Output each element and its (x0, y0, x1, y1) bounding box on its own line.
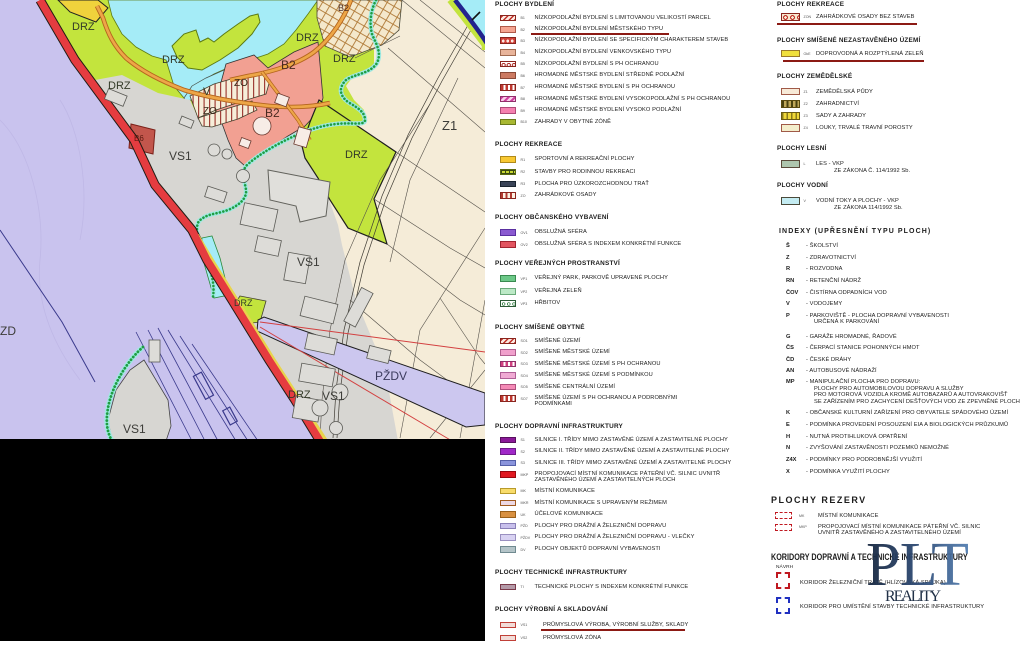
svg-text:DRZ: DRZ (296, 32, 319, 44)
svg-text:REALITY: REALITY (885, 588, 943, 605)
svg-text:DRZ: DRZ (72, 21, 95, 33)
svg-text:ZO: ZO (234, 78, 248, 89)
svg-text:DRZ: DRZ (234, 298, 253, 308)
svg-text:ZO: ZO (203, 106, 217, 117)
svg-text:B6: B6 (134, 134, 144, 143)
svg-text:PŽDV: PŽDV (375, 368, 407, 383)
svg-text:DRZ: DRZ (345, 149, 368, 161)
svg-text:VS1: VS1 (322, 389, 345, 403)
svg-text:DRZ: DRZ (108, 80, 131, 92)
svg-text:Z1: Z1 (442, 118, 457, 133)
svg-text:VS1: VS1 (169, 149, 192, 163)
svg-text:V: V (203, 86, 211, 98)
svg-text:B2: B2 (281, 58, 296, 72)
svg-text:VS1: VS1 (297, 255, 320, 269)
svg-text:ZD: ZD (0, 324, 16, 338)
svg-text:B2: B2 (338, 3, 349, 13)
svg-text:B2: B2 (265, 106, 280, 120)
svg-text:DRZ: DRZ (288, 389, 311, 401)
svg-text:DRZ: DRZ (333, 53, 356, 65)
svg-text:VS1: VS1 (123, 422, 146, 436)
svg-text:DRZ: DRZ (162, 54, 185, 66)
